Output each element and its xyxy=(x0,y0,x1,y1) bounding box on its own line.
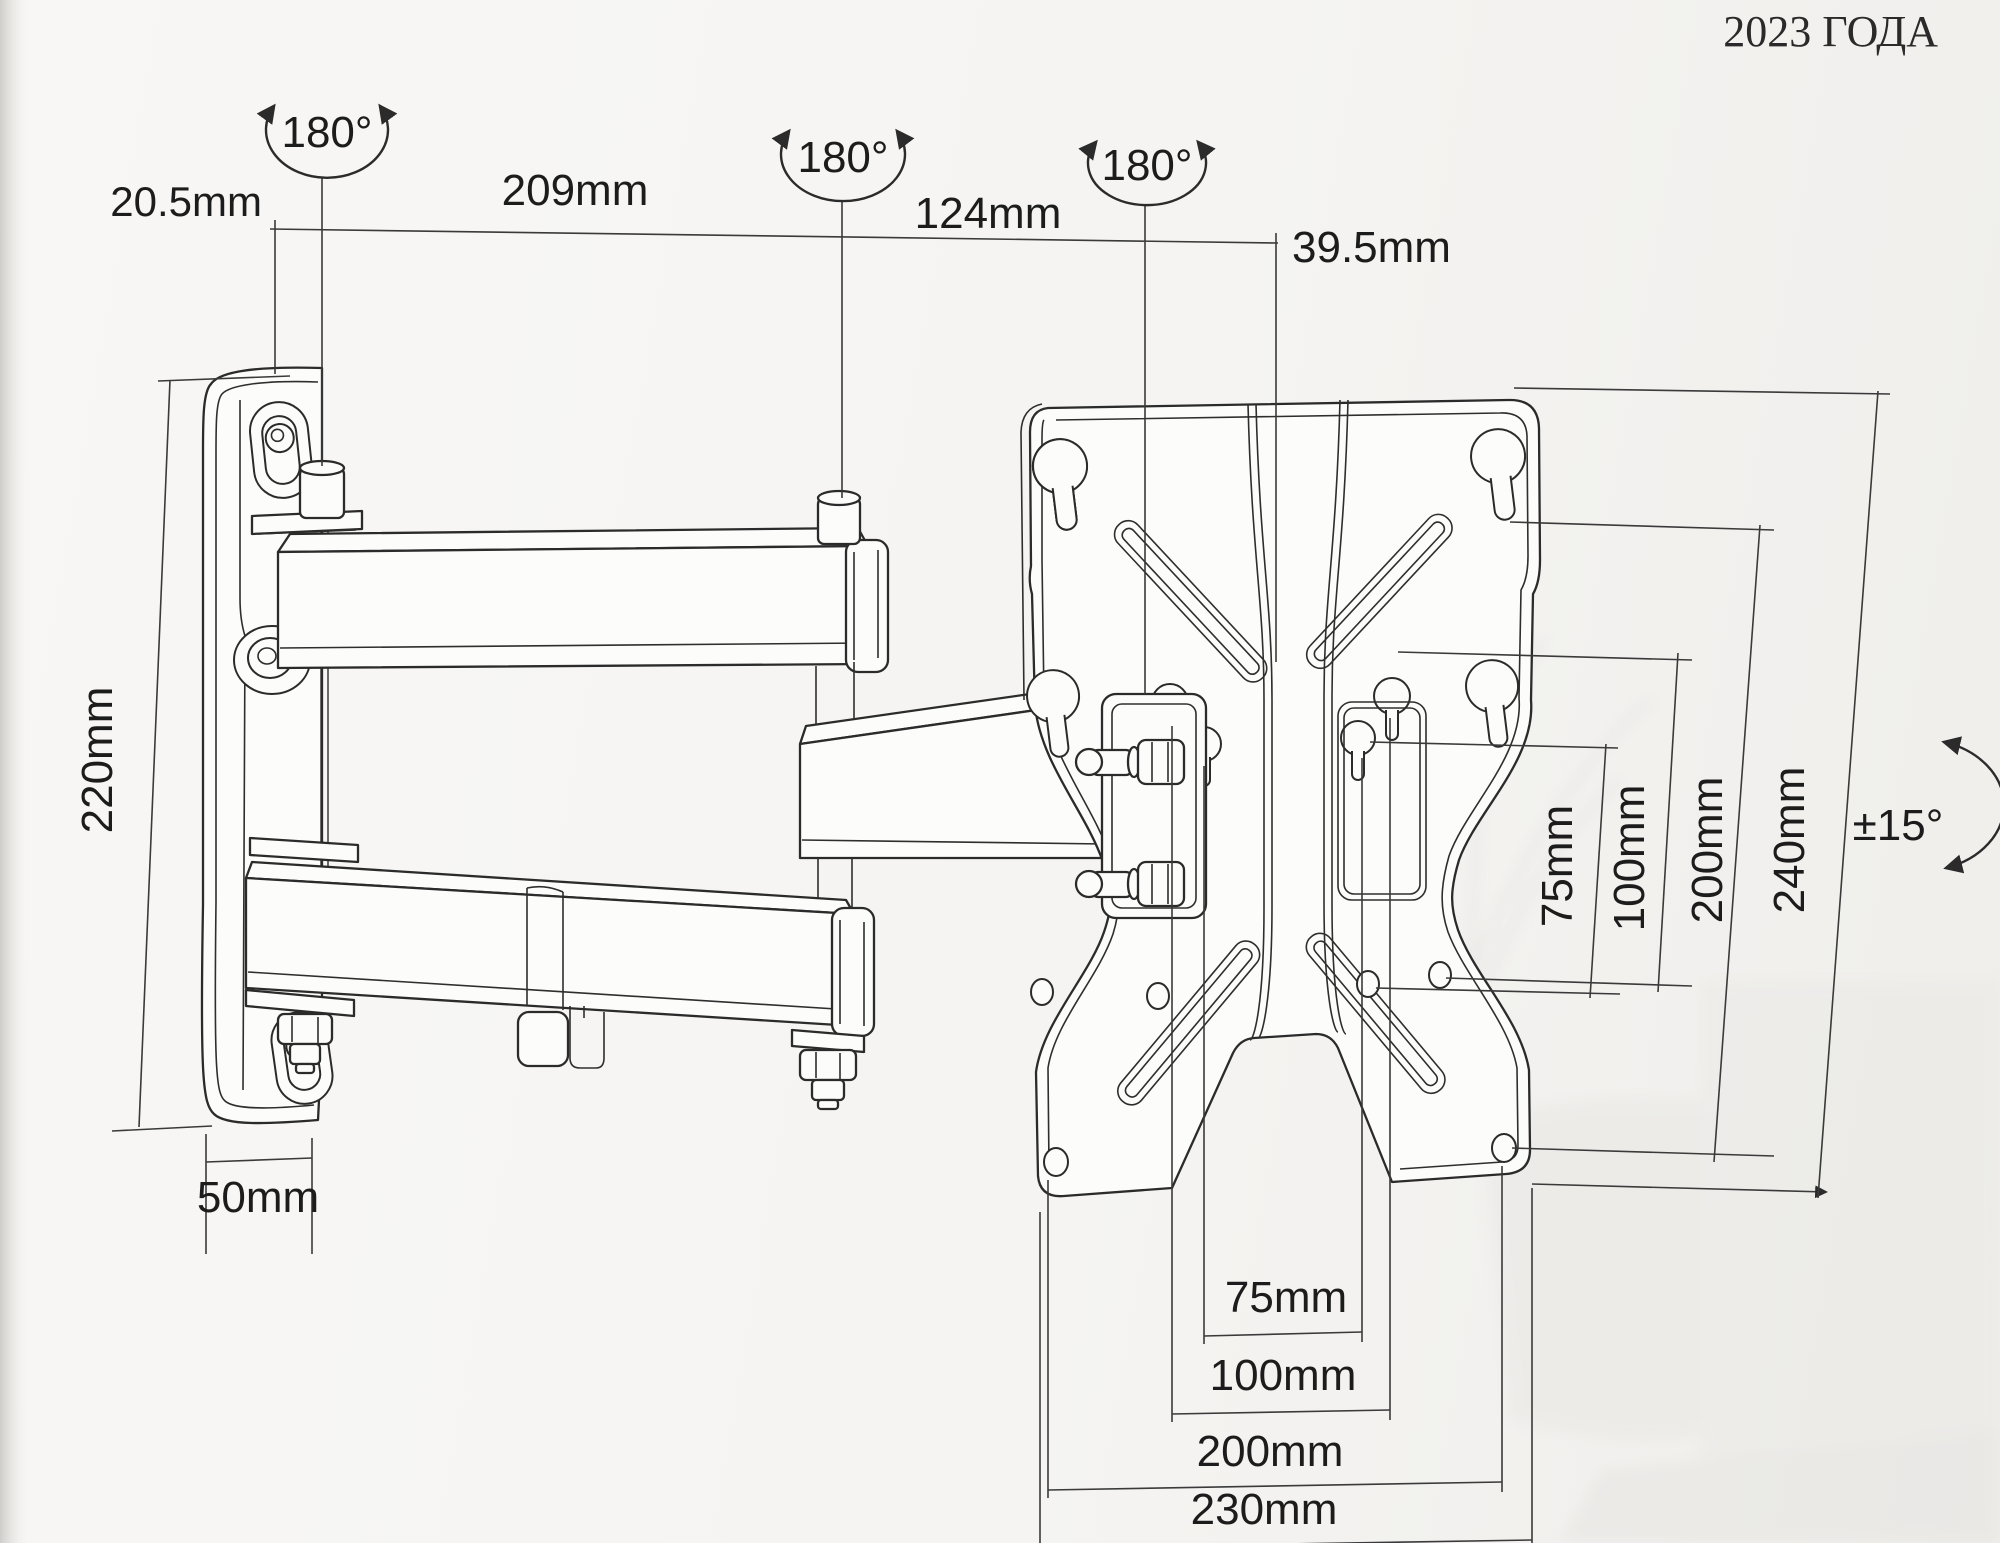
dim-wall-plate-width: 50mm xyxy=(197,1173,319,1222)
swivel-indicator-wall: 180° xyxy=(266,106,388,178)
tilt-indicator: ±15° xyxy=(1853,742,2000,868)
dim-arm-front: 124mm xyxy=(915,189,1062,238)
swivel-indicator-vesa: 180° xyxy=(1088,141,1206,205)
lower-arm-end-nut xyxy=(832,908,874,1036)
dim-vesa-h200: 200mm xyxy=(1197,1427,1344,1476)
swivel-elbow-label: 180° xyxy=(797,133,888,182)
vesa-plate xyxy=(1021,400,1540,1196)
dim-wall-offset: 20.5mm xyxy=(110,178,262,225)
swivel-vesa-label: 180° xyxy=(1101,141,1192,190)
upper-arm xyxy=(252,461,888,672)
tilt-label: ±15° xyxy=(1853,801,1944,850)
dim-vesa-v100: 100mm xyxy=(1605,785,1654,932)
swivel-wall-label: 180° xyxy=(281,108,372,157)
dim-vesa-h230: 230mm xyxy=(1191,1485,1338,1534)
dim-arm-main: 209mm xyxy=(502,166,649,215)
dim-vesa-v240: 240mm xyxy=(1765,767,1814,914)
dim-vesa-h75: 75mm xyxy=(1225,1273,1347,1322)
dim-vesa-v200: 200mm xyxy=(1683,777,1732,924)
manual-page-photo: 2023 ГОДА xyxy=(0,0,2000,1543)
lower-arm xyxy=(246,838,874,1109)
swivel-indicator-elbow: 180° xyxy=(781,131,905,201)
dim-vesa-v75: 75mm xyxy=(1533,805,1582,927)
page-edge-shadow xyxy=(0,0,30,1543)
background-pot xyxy=(1480,980,2000,1543)
upper-arm-end-nut xyxy=(846,540,888,672)
dim-vesa-h100: 100mm xyxy=(1210,1351,1357,1400)
dim-wall-plate-height: 220mm xyxy=(73,687,122,834)
year-label: 2023 ГОДА xyxy=(1723,7,1938,56)
dim-vesa-offset: 39.5mm xyxy=(1292,223,1451,272)
